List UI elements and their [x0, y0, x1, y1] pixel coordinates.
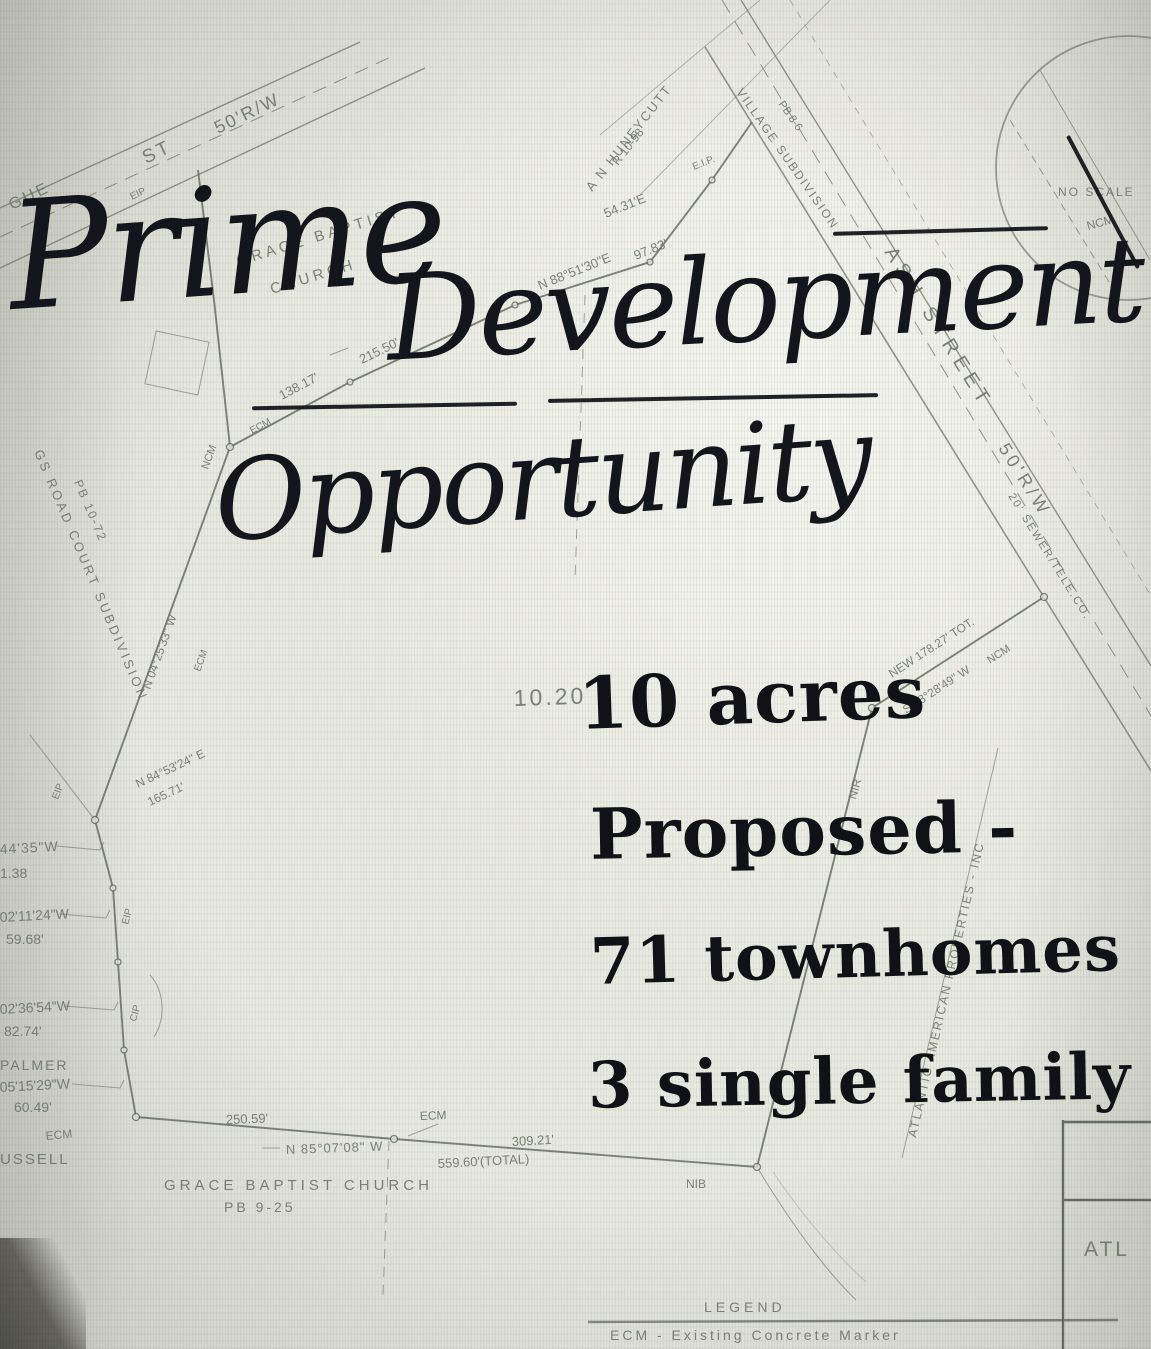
map-label: 138.17' — [276, 370, 320, 403]
map-label: 60.49' — [14, 1099, 52, 1115]
legend-rule — [588, 1320, 1118, 1322]
map-label: ECM — [192, 648, 210, 673]
handwritten-townhomes: 71 townhomes — [589, 917, 1121, 995]
map-label: EIP — [50, 782, 66, 801]
photo-corner-shadow — [0, 1238, 86, 1349]
map-label: N 04°25'33" W — [140, 612, 180, 691]
legend-title: LEGEND — [704, 1299, 786, 1315]
map-label: USSELL — [0, 1151, 70, 1168]
map-label: 1.38 — [0, 865, 27, 881]
handwritten-title-word-prime: Prime — [3, 153, 449, 333]
handwritten-single-family: 3 single family — [587, 1045, 1131, 1118]
map-label: NIB — [686, 1177, 706, 1191]
titleblock-lines — [1063, 1120, 1151, 1349]
map-label: 250.59' — [226, 1111, 269, 1127]
map-label: ECM — [45, 1127, 73, 1143]
titleblock-label: ATL — [1084, 1238, 1130, 1261]
map-label: PB 8-6 — [776, 99, 805, 133]
plat-photo: GUE ST 50'R/W EIP GRACE BAPTIST CHURCH A… — [0, 0, 1151, 1349]
map-label: 309.21' — [511, 1132, 554, 1149]
map-label: 05'15'29"W — [0, 1075, 71, 1095]
map-label: E.I.P. — [691, 154, 717, 173]
map-label: 559.60'(TOTAL) — [437, 1151, 529, 1171]
map-label: NCM — [985, 643, 1013, 667]
map-label: PALMER — [0, 1057, 69, 1073]
map-label: GS ROAD COURT SUBDIVISION — [31, 447, 151, 703]
map-label: 50'R/W — [211, 89, 283, 138]
map-label: 82.74' — [4, 1023, 42, 1039]
map-label: 02'11'24"W — [0, 905, 70, 925]
map-label: 59.68' — [6, 931, 44, 947]
map-label: EIP — [120, 907, 135, 926]
map-label: 02'36'54"W — [0, 997, 71, 1017]
map-label: ECM — [420, 1108, 447, 1123]
map-label: N 85°07'08" W — [286, 1139, 384, 1157]
legend-entry: ECM - Existing Concrete Marker — [610, 1327, 901, 1343]
map-label: 54.31'E — [602, 190, 648, 220]
map-label: GRACE BAPTIST CHURCH — [164, 1177, 433, 1194]
map-label: 44'35"W — [0, 838, 59, 857]
handwritten-acreage: 10 acres — [577, 656, 927, 740]
map-label: CIP — [128, 1004, 143, 1023]
map-label: 10.20 — [513, 682, 586, 711]
handwritten-proposed: Proposed - — [589, 792, 1018, 869]
map-label: PB 9-25 — [224, 1199, 296, 1215]
